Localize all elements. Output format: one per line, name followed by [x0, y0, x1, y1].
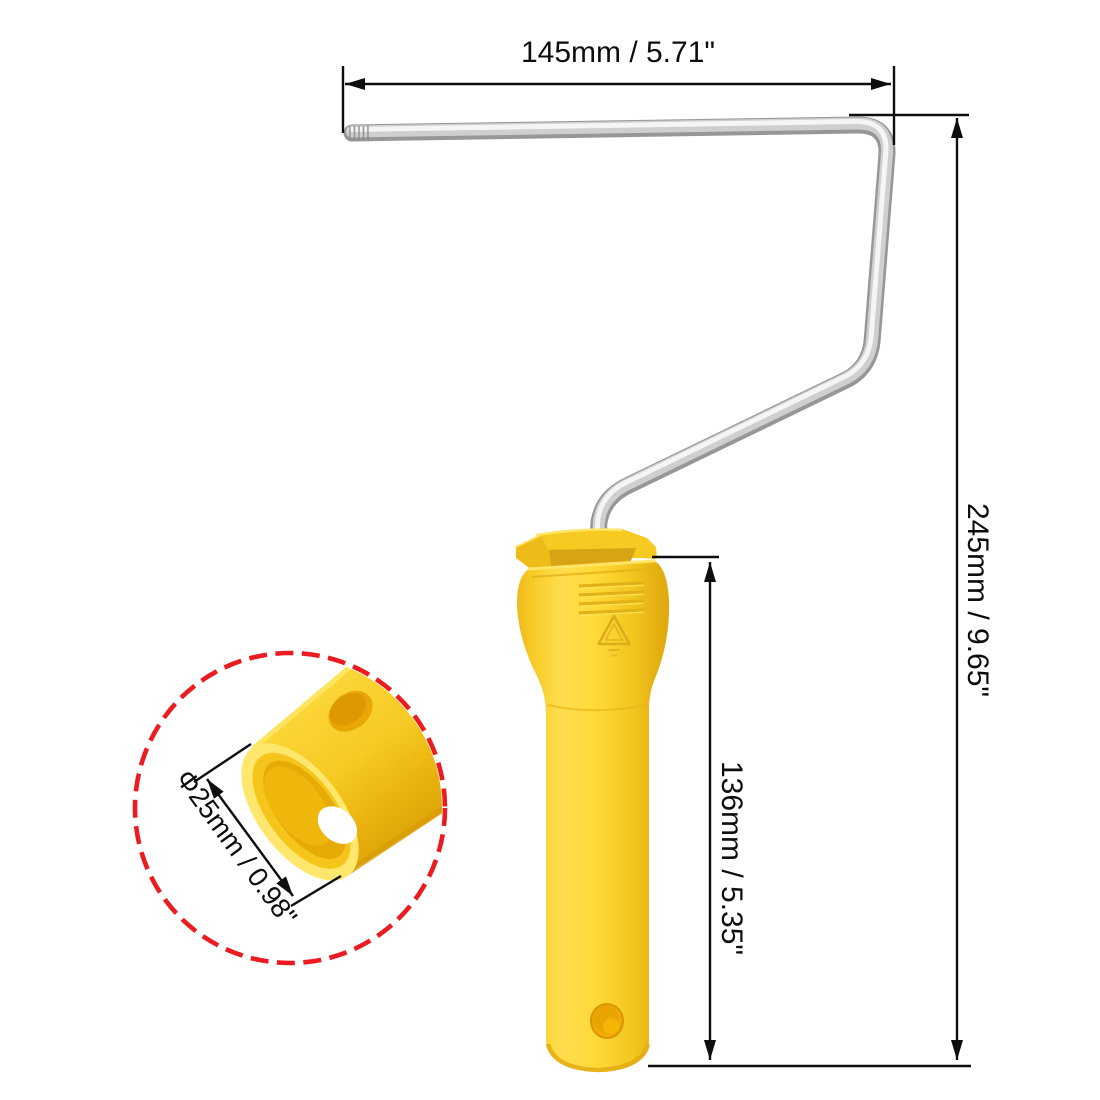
hang-hole [591, 1004, 623, 1038]
handle [516, 529, 669, 1072]
height-dimension [648, 115, 971, 1066]
product-diagram: Φ25mm / 0.98" 145mm / 5.71" 245mm / 9.65… [0, 0, 1100, 1100]
zoom-callout: Φ25mm / 0.98" [135, 612, 527, 963]
width-dimension-label: 145mm / 5.71" [521, 36, 715, 69]
handle-length-dimension-label: 136mm / 5.35" [715, 761, 748, 955]
handle-body [517, 561, 669, 1072]
product-diagram-svg: Φ25mm / 0.98" 145mm / 5.71" 245mm / 9.65… [0, 0, 1100, 1100]
roller-frame-rod [350, 121, 887, 566]
height-dimension-label: 245mm / 9.65" [961, 503, 994, 697]
